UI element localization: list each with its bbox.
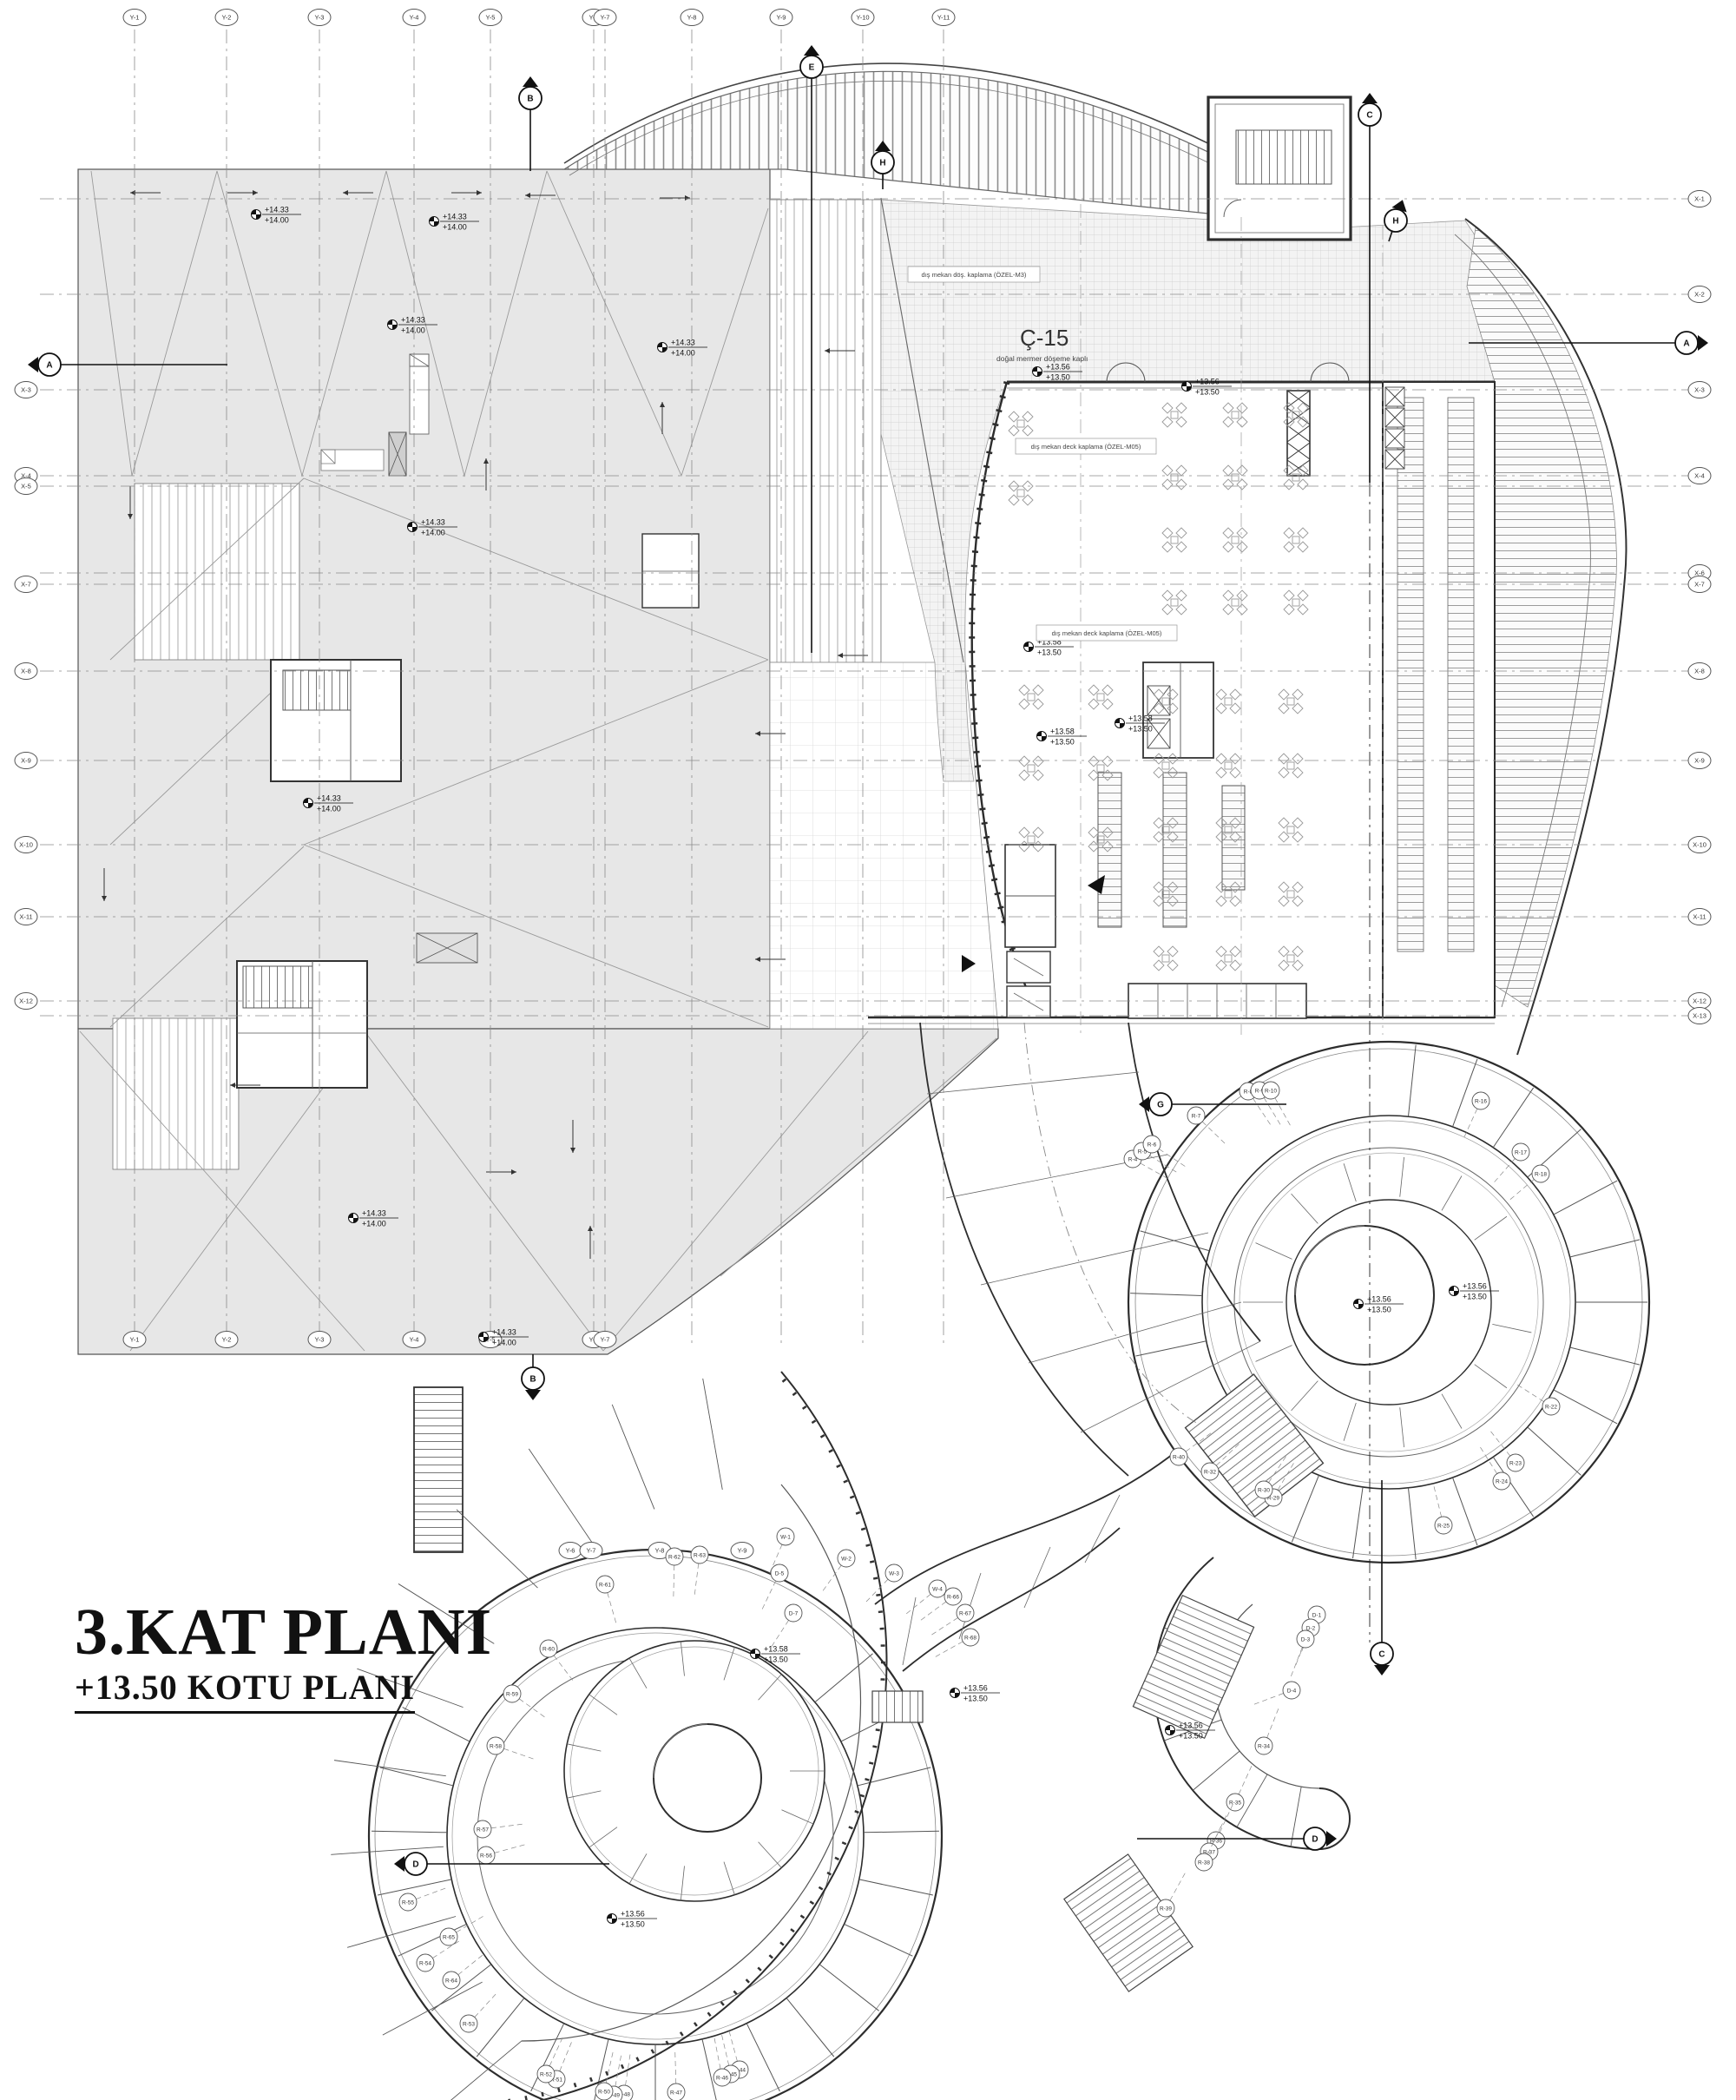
grid-bubble: Y-7 — [594, 10, 616, 26]
grid-bubble-label: X-8 — [21, 668, 31, 675]
wing-south-stair — [872, 1691, 923, 1722]
grid-bubble: Y-4 — [403, 10, 425, 26]
annotation-label: dış mekan deck kaplama (ÖZEL-M05) — [1036, 625, 1177, 641]
room-bubble-label: R-63 — [694, 1552, 706, 1558]
grid-bubble-label: X-12 — [19, 997, 33, 1005]
grid-bubble-label: Y-2 — [222, 14, 232, 22]
table-cluster — [1223, 403, 1247, 427]
room-bubble-label: R-56 — [480, 1853, 492, 1859]
grid-bubble-label: Y-9 — [738, 1547, 747, 1555]
elevation-lower: +14.00 — [265, 216, 289, 225]
grid-bubble: Y-9 — [731, 1543, 753, 1559]
elevation-marker: +13.58+13.50 — [1037, 727, 1088, 747]
room-bubble-label: R-39 — [1160, 1906, 1172, 1912]
annotation-label: dış mekan döş. kaplama (ÖZEL-M3) — [908, 267, 1040, 282]
grid-bubble-label: Y-3 — [315, 14, 325, 22]
grid-bubble-label: Y-4 — [410, 14, 419, 22]
grid-bubble: X-1 — [1688, 191, 1711, 207]
grid-bubble: Y-1 — [123, 10, 146, 26]
room-bubble-label: R-59 — [506, 1691, 518, 1697]
grid-bubble: Y-11 — [932, 10, 955, 26]
grid-bubble-label: Y-6 — [566, 1547, 575, 1555]
room-bubble-label: R-32 — [1204, 1469, 1216, 1475]
grid-bubble: X-4 — [1688, 468, 1711, 484]
elevation-upper: +14.33 — [265, 206, 289, 214]
annotation-text: dış mekan deck kaplama (ÖZEL-M05) — [1031, 443, 1141, 451]
table-cluster — [1009, 411, 1033, 436]
grid-bubble: X-9 — [1688, 753, 1711, 769]
kitchen-counter-west — [1397, 398, 1424, 951]
room-bubble-label: R-68 — [964, 1635, 976, 1641]
table-cluster — [1279, 689, 1303, 714]
grid-bubble: Y-3 — [308, 10, 331, 26]
room-bubble-label: R-22 — [1545, 1404, 1557, 1410]
elevation-upper: +14.33 — [317, 794, 341, 803]
grid-bubble: Y-2 — [215, 1332, 238, 1348]
table-cluster — [1216, 689, 1240, 714]
core-lift-column — [1287, 391, 1310, 476]
section-marker-label: D — [412, 1860, 418, 1870]
room-bubble-label: R-40 — [1173, 1454, 1185, 1460]
grid-bubble-label: Y-7 — [587, 1547, 596, 1555]
grid-bubble: X-9 — [15, 753, 37, 769]
room-bubble-label: R-66 — [947, 1594, 959, 1600]
grid-bubble-label: Y-5 — [486, 14, 496, 22]
grid-bubble-label: Y-4 — [410, 1336, 419, 1344]
grid-bubble-label: Y-8 — [655, 1547, 665, 1555]
section-marker-label: H — [879, 159, 885, 168]
elevation-lower: +13.50 — [1128, 725, 1153, 734]
grid-bubble-label: X-3 — [1694, 386, 1705, 394]
zone-label: Ç-15 — [1020, 325, 1069, 351]
elevation-lower: +14.00 — [317, 805, 341, 813]
grid-bubble: Y-7 — [580, 1543, 602, 1559]
elevation-upper: +14.33 — [362, 1209, 386, 1218]
buffet-counters — [1098, 773, 1245, 927]
section-marker-label: A — [46, 361, 52, 371]
room-bubble: W-3 — [866, 1564, 903, 1602]
grid-bubble-label: X-11 — [1693, 913, 1706, 921]
room-bubble-label: D-4 — [1287, 1688, 1297, 1694]
room-bubble-label: R-18 — [1535, 1171, 1547, 1177]
grid-bubble-label: X-9 — [1694, 757, 1705, 765]
table-cluster — [1216, 946, 1240, 971]
room-bubble-label: R-62 — [668, 1554, 681, 1560]
elevation-upper: +13.56 — [1463, 1282, 1487, 1291]
room-bubble-label: D-5 — [775, 1570, 785, 1577]
room-bubble-label: R-35 — [1229, 1800, 1241, 1806]
grid-bubble-label: X-3 — [21, 386, 31, 394]
grid-bubble-label: X-2 — [1694, 291, 1705, 299]
room-bubble-label: R-50 — [598, 2089, 610, 2095]
grid-bubble: X-11 — [1688, 909, 1711, 925]
grid-bubble: X-8 — [15, 663, 37, 680]
grid-bubble-label: X-10 — [1693, 841, 1706, 849]
grid-bubble-label: Y-7 — [601, 14, 610, 22]
grid-bubble: X-12 — [1688, 993, 1711, 1010]
table-cluster — [1223, 528, 1247, 552]
elevation-lower: +13.50 — [1367, 1306, 1391, 1314]
elevation-upper: +13.56 — [1367, 1295, 1391, 1304]
grid-bubble: X-13 — [1688, 1008, 1711, 1024]
grid-bubble: Y-5 — [479, 10, 502, 26]
elevation-upper: +14.33 — [401, 316, 425, 325]
elevation-lower: +14.00 — [671, 349, 695, 358]
elevation-lower: +14.00 — [362, 1220, 386, 1228]
elevation-upper: +14.33 — [671, 339, 695, 347]
table-cluster — [1162, 528, 1187, 552]
grid-bubble: Y-8 — [681, 10, 703, 26]
grid-bubble-label: X-11 — [19, 913, 32, 921]
section-marker-label: B — [527, 95, 533, 104]
elevation-lower: +13.50 — [1037, 648, 1062, 657]
grid-bubble: X-11 — [15, 909, 37, 925]
grid-bubble: Y-9 — [770, 10, 792, 26]
grid-bubble-label: X-7 — [1694, 581, 1705, 589]
room-bubble: R-39 — [1157, 1873, 1185, 1917]
grid-bubble-label: Y-3 — [315, 1336, 325, 1344]
room-bubble: W-4 — [906, 1580, 946, 1614]
elevation-lower: +14.00 — [401, 326, 425, 335]
wing-south-courtyard — [654, 1724, 761, 1832]
grid-bubble-label: Y-1 — [130, 1336, 140, 1344]
room-bubble-label: R-58 — [490, 1743, 502, 1749]
grid-bubble: Y-1 — [123, 1332, 146, 1348]
section-marker-label: A — [1683, 339, 1689, 349]
room-bubble-label: W-2 — [841, 1556, 852, 1562]
grid-bubble: X-8 — [1688, 663, 1711, 680]
room-bubble-label: R-7 — [1192, 1113, 1201, 1119]
elevation-lower: +13.50 — [1046, 373, 1070, 382]
table-cluster — [1162, 403, 1187, 427]
annotation-label: dış mekan deck kaplama (ÖZEL-M05) — [1016, 438, 1156, 454]
room-bubble-label: R-61 — [599, 1582, 611, 1588]
plan-drawing: Y-1Y-2Y-3Y-4Y-5Y-6Y-7Y-8Y-9Y-10Y-11Y-1Y-… — [0, 0, 1736, 2100]
room-bubble-label: R-53 — [463, 2021, 475, 2027]
grid-bubble-label: X-5 — [21, 483, 31, 490]
room-bubble-label: W-1 — [780, 1534, 791, 1540]
room-bubble-label: R-34 — [1258, 1743, 1270, 1749]
room-bubble-label: R-24 — [1496, 1478, 1508, 1484]
skylight-strip-2 — [113, 1018, 239, 1169]
room-bubble-label: R-55 — [402, 1899, 414, 1906]
section-marker-label: G — [1157, 1101, 1164, 1110]
elevation-lower: +13.50 — [764, 1656, 788, 1664]
elevation-upper: +13.58 — [1050, 727, 1075, 736]
floor-plan-sheet: Y-1Y-2Y-3Y-4Y-5Y-6Y-7Y-8Y-9Y-10Y-11Y-1Y-… — [0, 0, 1736, 2100]
grid-bubble-label: X-10 — [19, 841, 33, 849]
section-marker-label: C — [1366, 111, 1372, 121]
elevation-upper: +13.56 — [1195, 378, 1220, 386]
room-bubble: R-68 — [936, 1629, 979, 1656]
room-bubble-label: R-64 — [445, 1978, 457, 1984]
south-switchback-stair — [1064, 1854, 1193, 1991]
elevation-lower: +13.50 — [1050, 738, 1075, 747]
section-marker-d: D — [1137, 1827, 1337, 1850]
section-marker-label: B — [529, 1375, 536, 1385]
grid-bubble: Y-6 — [559, 1543, 582, 1559]
room-bubble-label: R-10 — [1265, 1088, 1277, 1094]
section-marker-label: D — [1312, 1835, 1318, 1845]
grid-bubble: X-2 — [1688, 286, 1711, 303]
room-bubble-label: D-7 — [789, 1610, 799, 1616]
room-bubble-label: R-57 — [477, 1827, 489, 1833]
grid-bubble-label: Y-10 — [856, 14, 869, 22]
floor-material-note: doğal mermer döşeme kaplı — [996, 354, 1088, 363]
table-cluster — [1019, 685, 1043, 709]
room-bubble-label: R-65 — [443, 1934, 455, 1940]
drawing-subtitle: +13.50 KOTU PLANI — [75, 1667, 415, 1714]
elevation-lower: +13.50 — [1463, 1293, 1487, 1301]
grid-bubble: X-10 — [1688, 837, 1711, 853]
grid-bubble-label: Y-8 — [687, 14, 697, 22]
grid-bubble-label: Y-9 — [777, 14, 786, 22]
grid-bubble-label: X-8 — [1694, 668, 1705, 675]
core-southwest-rooms — [1005, 845, 1055, 1017]
kitchen-strip — [1383, 382, 1495, 1017]
section-marker-label: E — [809, 63, 815, 73]
grid-bubble-label: Y-1 — [130, 14, 140, 22]
grid-bubble: Y-2 — [215, 10, 238, 26]
drawing-title: 3.KAT PLANI — [75, 1599, 492, 1665]
grid-bubble-label: Y-7 — [601, 1336, 610, 1344]
grid-bubble: Y-10 — [852, 10, 874, 26]
small-roof-room — [642, 534, 699, 608]
table-cluster — [1216, 754, 1240, 778]
table-cluster — [1088, 685, 1113, 709]
room-bubble-label: R-6 — [1147, 1142, 1157, 1148]
title-block: 3.KAT PLANI +13.50 KOTU PLANI — [75, 1599, 492, 1714]
elevation-upper: +13.56 — [621, 1910, 645, 1919]
section-marker-b: B — [522, 1354, 544, 1400]
table-cluster — [1223, 590, 1247, 615]
room-bubble-label: R-38 — [1198, 1860, 1210, 1866]
grid-bubble-label: X-7 — [21, 581, 31, 589]
section-marker-label: C — [1378, 1650, 1384, 1660]
roof-stair-core-2 — [237, 961, 367, 1088]
kitchen-counter-east — [1448, 398, 1474, 951]
grid-bubble: X-12 — [15, 993, 37, 1010]
grid-bubble: X-7 — [1688, 576, 1711, 593]
wing-east-courtyard — [1295, 1226, 1434, 1365]
table-cluster — [1284, 590, 1308, 615]
room-bubble-label: W-3 — [889, 1570, 899, 1577]
roof-deck-striped — [770, 200, 881, 662]
room-bubble-label: R-54 — [419, 1960, 431, 1966]
table-cluster — [1279, 882, 1303, 906]
elevation-upper: +13.56 — [1046, 363, 1070, 372]
elevation-upper: +14.33 — [443, 213, 467, 221]
grid-bubble-label: X-4 — [1694, 472, 1705, 480]
roof-plan — [78, 169, 998, 1552]
grid-bubble-label: Y-2 — [222, 1336, 232, 1344]
elevation-upper: +14.33 — [421, 518, 445, 527]
grid-bubble: X-5 — [15, 478, 37, 495]
table-cluster — [1279, 818, 1303, 842]
top-stair-enclosure — [1208, 97, 1351, 240]
elevation-lower: +14.00 — [443, 223, 467, 232]
grid-bubble: X-3 — [15, 382, 37, 398]
room-bubble: D-3 — [1291, 1630, 1314, 1676]
grid-bubble-label: X-13 — [1693, 1012, 1706, 1020]
annotation-text: dış mekan döş. kaplama (ÖZEL-M3) — [922, 271, 1027, 279]
room-bubble-label: R-67 — [959, 1610, 971, 1616]
elevation-upper: +13.58 — [764, 1645, 788, 1654]
room-bubble-label: R-46 — [716, 2075, 728, 2081]
connector-wings — [875, 1452, 1176, 1671]
section-marker-label: H — [1392, 217, 1398, 227]
grid-bubble: Y-4 — [403, 1332, 425, 1348]
room-bubble-label: R-60 — [542, 1646, 555, 1652]
room-bubble-label: R-23 — [1509, 1460, 1522, 1466]
elevation-lower: +13.50 — [1179, 1732, 1203, 1741]
room-bubble-label: R-47 — [670, 2090, 682, 2096]
room-bubble-label: R-52 — [540, 2071, 552, 2077]
annotation-text: dış mekan deck kaplama (ÖZEL-M05) — [1052, 629, 1162, 637]
room-bubble-label: R-17 — [1515, 1149, 1527, 1155]
table-cluster — [1154, 946, 1178, 971]
elevation-lower: +13.50 — [621, 1920, 645, 1929]
room-bubble-label: R-30 — [1258, 1487, 1270, 1493]
elevation-upper: +14.33 — [492, 1328, 516, 1337]
elevation-upper: +13.56 — [1179, 1721, 1203, 1730]
grid-bubble: Y-3 — [308, 1332, 331, 1348]
grid-bubble-label: X-9 — [21, 757, 31, 765]
elevation-upper: +13.56 — [963, 1684, 988, 1693]
elevation-marker: +13.56+13.50 — [950, 1684, 1001, 1703]
table-cluster — [1284, 528, 1308, 552]
grid-bubble-label: X-12 — [1693, 997, 1706, 1005]
room-bubble-label: D-3 — [1301, 1636, 1311, 1642]
skylight-strip-1 — [135, 484, 299, 660]
elevation-lower: +13.50 — [963, 1695, 988, 1703]
room-bubble-label: W-4 — [932, 1586, 943, 1592]
grid-bubble: X-3 — [1688, 382, 1711, 398]
elevation-lower: +14.00 — [421, 529, 445, 537]
core-center-stair — [1143, 662, 1213, 758]
grid-bubble: X-10 — [15, 837, 37, 853]
grid-bubble-label: Y-11 — [937, 14, 950, 22]
table-cluster — [1162, 590, 1187, 615]
table-cluster — [1279, 754, 1303, 778]
room-bubble-label: R-25 — [1437, 1523, 1450, 1529]
section-marker-b: B — [519, 76, 542, 171]
roof-stair-shaft — [414, 1387, 463, 1552]
elevation-upper: +13.58 — [1128, 714, 1153, 723]
grid-bubble: X-7 — [15, 576, 37, 593]
grid-bubble-label: X-1 — [1694, 195, 1705, 203]
room-bubble-label: R-16 — [1475, 1098, 1487, 1104]
room-bubble-label: D-1 — [1312, 1612, 1322, 1618]
table-cluster — [1279, 946, 1303, 971]
roof-stair-core-1 — [271, 660, 401, 781]
elevation-lower: +13.50 — [1195, 388, 1220, 397]
table-cluster — [1019, 756, 1043, 780]
table-cluster — [1009, 481, 1033, 505]
elevation-lower: +14.00 — [492, 1339, 516, 1347]
wing-south-inner-block — [564, 1641, 825, 1901]
grid-bubble: Y-7 — [594, 1332, 616, 1348]
